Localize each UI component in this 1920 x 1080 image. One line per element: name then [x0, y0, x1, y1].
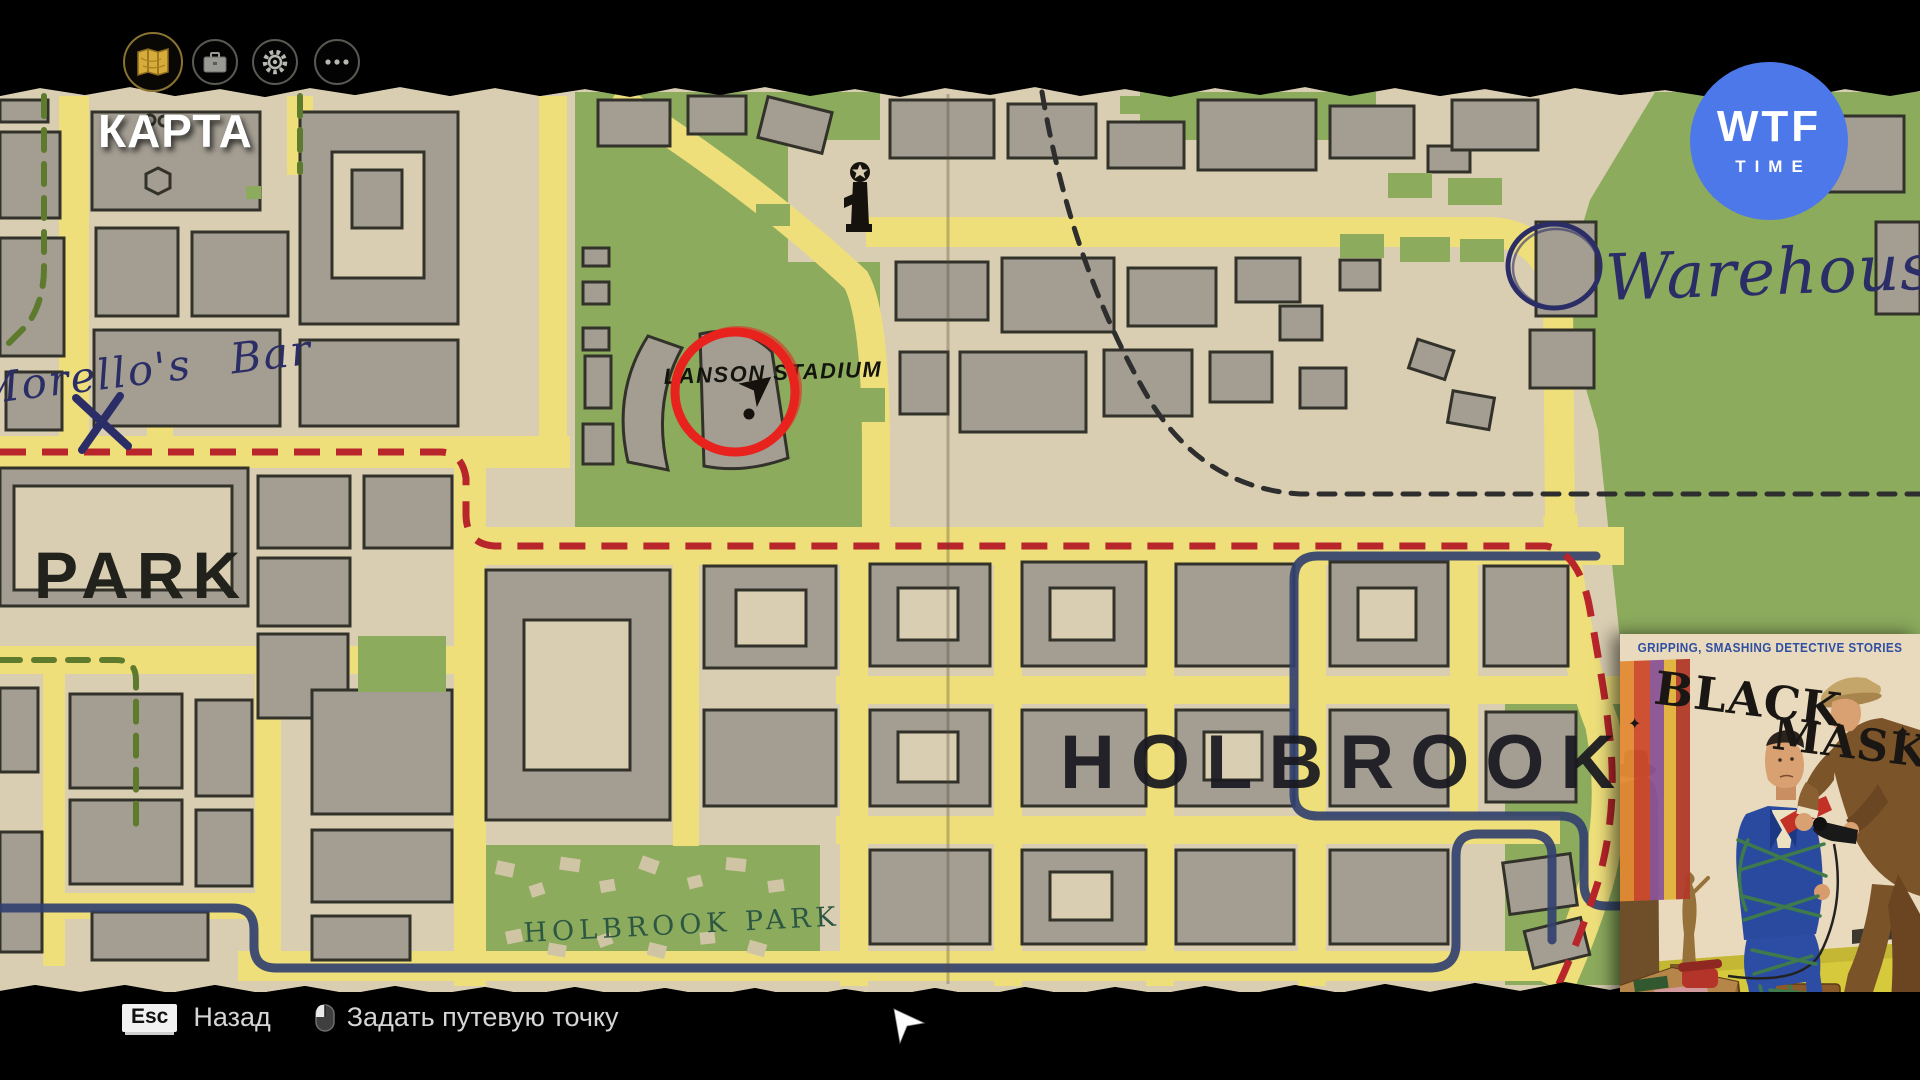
star-icon: ✦: [1628, 714, 1641, 733]
map-screen: Morello's Bar Warehouse PARK HOLBROOK HO…: [0, 0, 1920, 1080]
briefcase-icon: [202, 50, 228, 74]
park-district-label: PARK: [34, 538, 248, 612]
watermark-line1: WTF: [1717, 105, 1821, 149]
gear-icon: [261, 48, 289, 76]
cover-title: ✦ BLACK MASK ✦: [1620, 656, 1920, 766]
cover-tagline: GRIPPING, SMASHING DETECTIVE STORIES: [1629, 641, 1911, 655]
settings-tab-button[interactable]: [252, 39, 298, 85]
mouse-cursor: [893, 1008, 929, 1053]
holbrook-district-label: HOLBROOK: [1060, 720, 1631, 805]
back-hint-label: Назад: [193, 1002, 270, 1033]
waypoint-hint-label: Задать путевую точку: [347, 1002, 619, 1033]
page-title: КАРТА: [98, 104, 253, 158]
mouse-left-click-icon: [315, 1004, 335, 1032]
map-icon: [136, 47, 170, 77]
map-tab-button[interactable]: [123, 32, 183, 92]
bottom-hint-bar: Esc Назад Задать путевую точку: [0, 992, 1920, 1080]
ellipsis-icon: [324, 58, 350, 66]
warehouse-label: Warehouse: [1604, 229, 1920, 316]
top-menu-bar: [0, 0, 1920, 96]
star-icon: ✦: [1896, 722, 1909, 741]
watermark-line2: TIME: [1726, 157, 1812, 177]
inventory-tab-button[interactable]: [192, 39, 238, 85]
more-tab-button[interactable]: [314, 39, 360, 85]
esc-key-badge[interactable]: Esc: [122, 1004, 177, 1032]
